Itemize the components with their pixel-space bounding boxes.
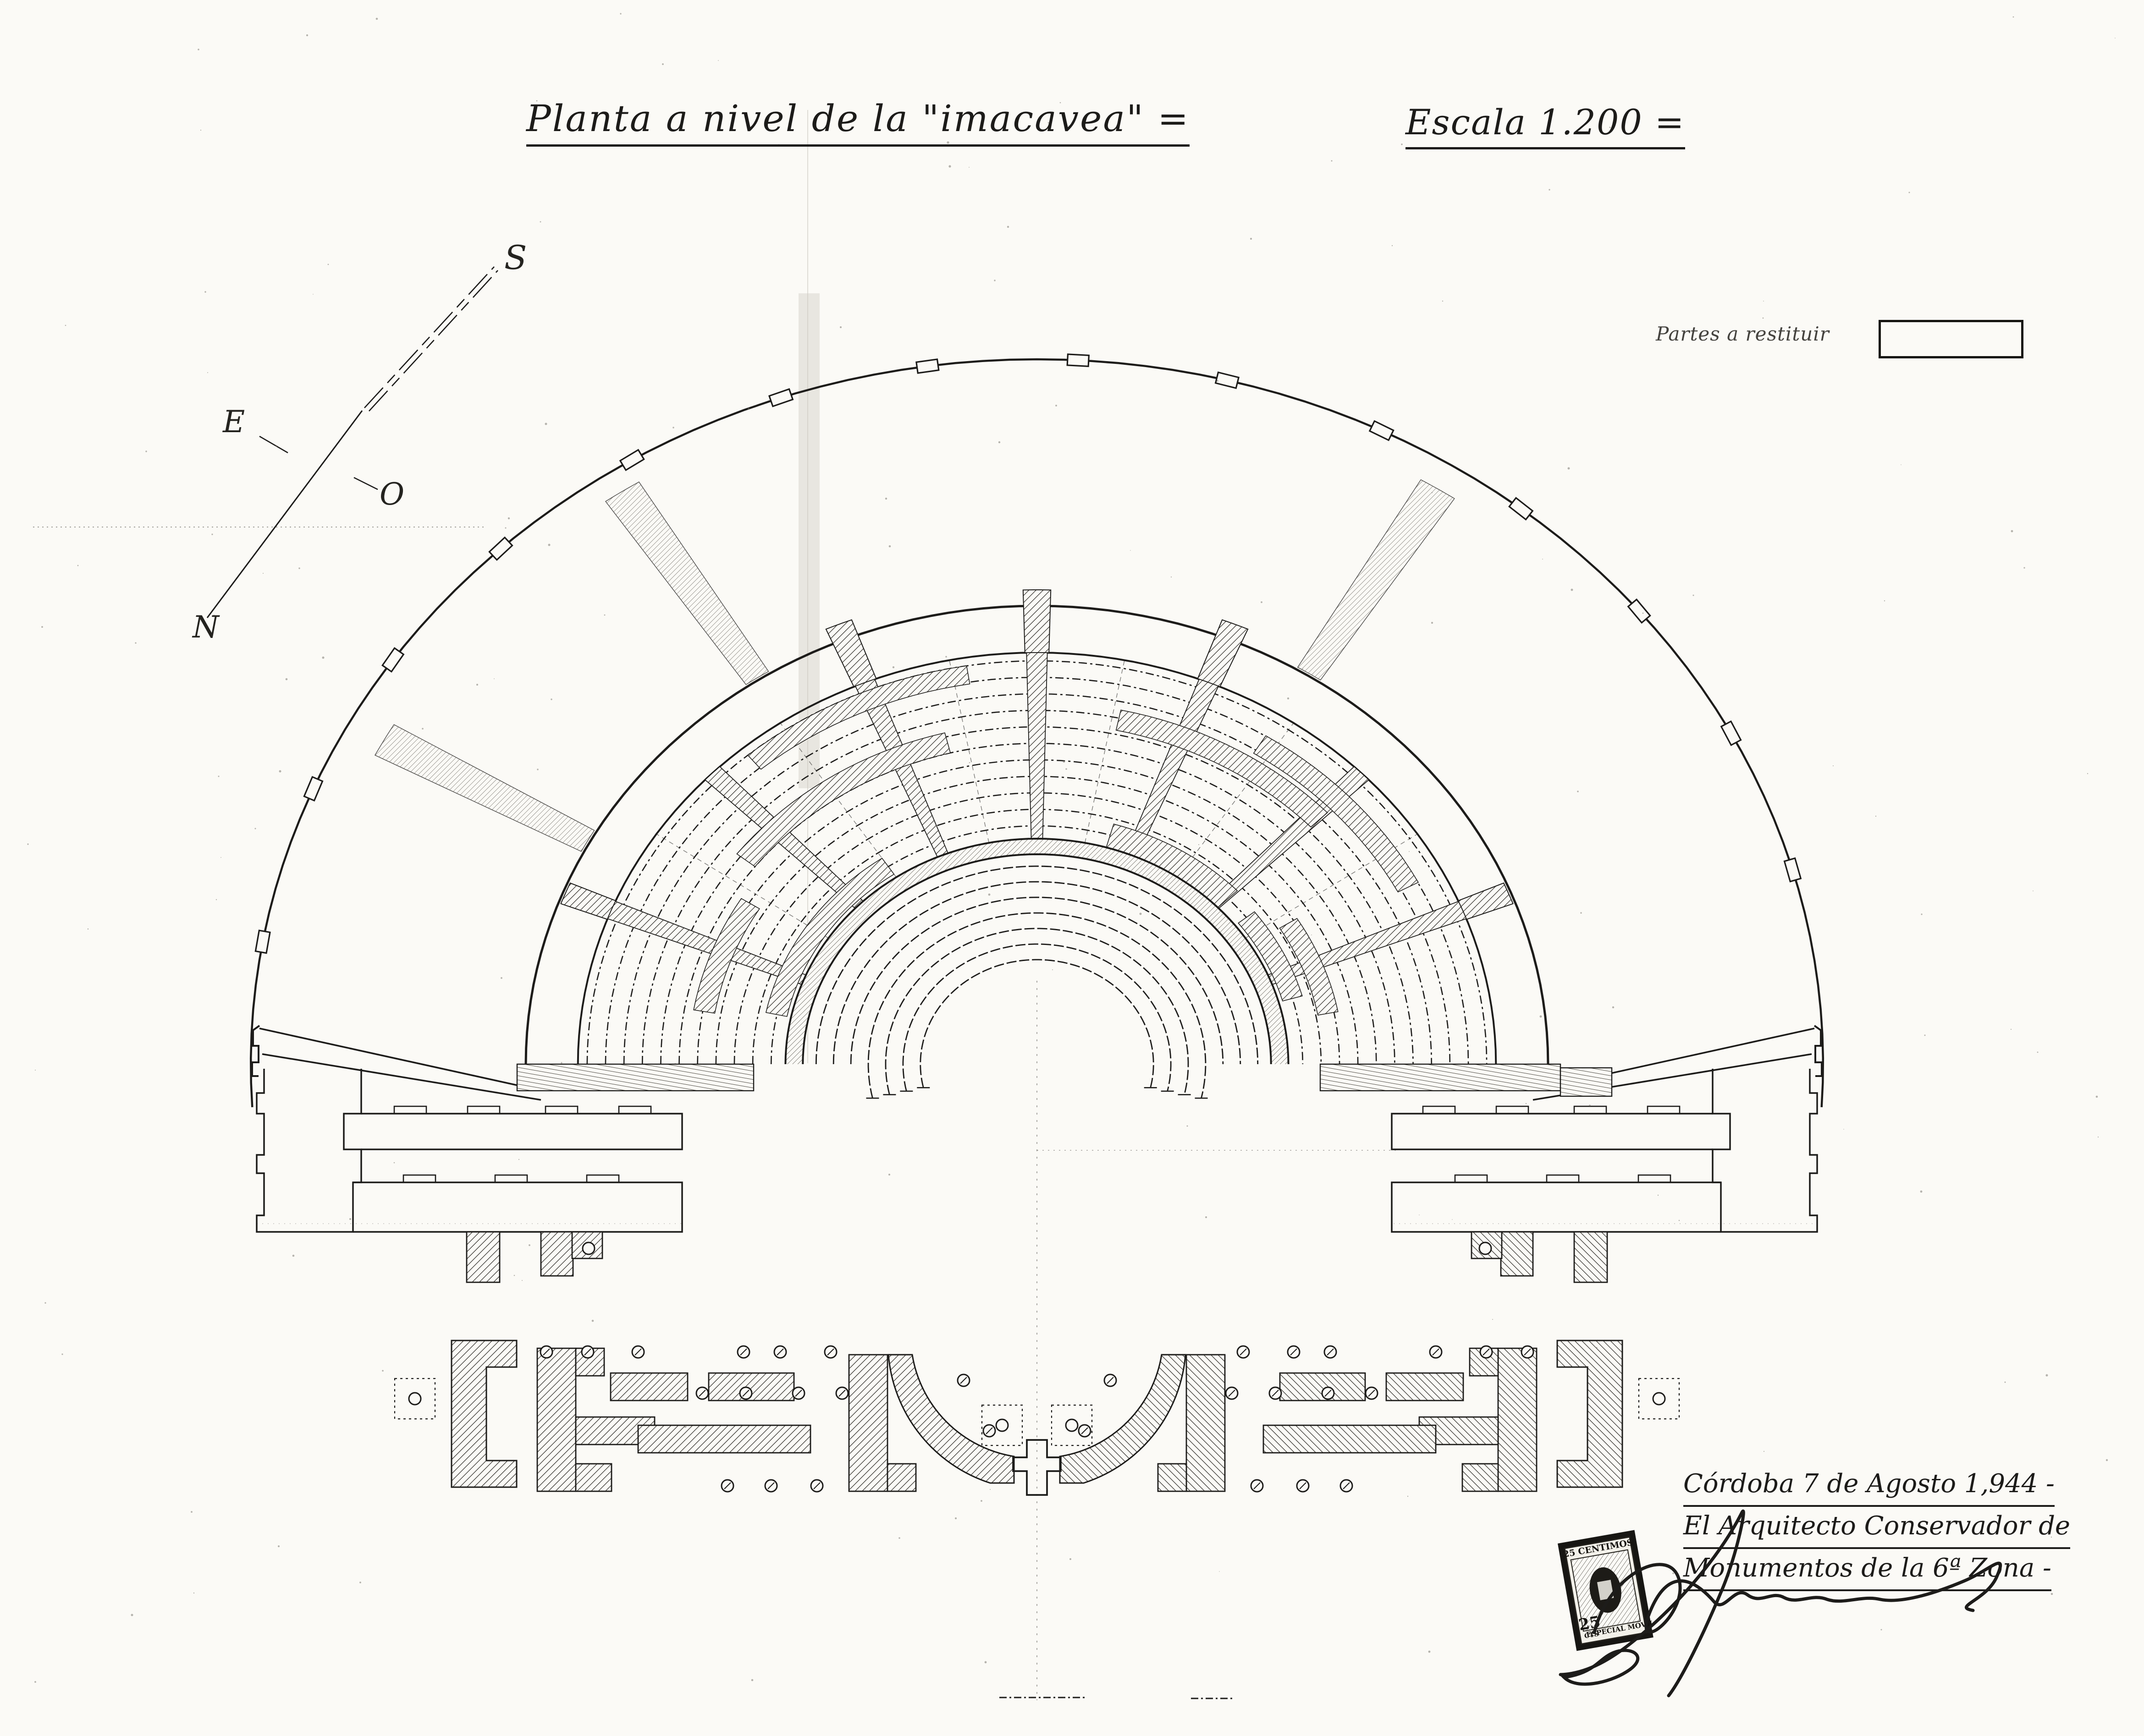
column-base bbox=[1653, 1393, 1665, 1405]
scan-speckle bbox=[2013, 16, 2014, 18]
side-structure-wall bbox=[353, 1182, 682, 1232]
scan-speckle bbox=[1063, 761, 1065, 763]
scan-speckle bbox=[1140, 913, 1142, 915]
scan-speckle bbox=[1069, 1558, 1071, 1560]
scan-speckle bbox=[672, 427, 674, 428]
wall-pier-hatched bbox=[1158, 1464, 1186, 1491]
zone-line: Monumentos de la 6ª Zona - bbox=[1683, 1549, 2051, 1591]
cuneus-line bbox=[949, 660, 989, 843]
scan-speckle bbox=[548, 544, 551, 546]
scan-speckle bbox=[969, 167, 970, 168]
scan-speckle bbox=[1875, 816, 1876, 817]
facade-buttress-notch bbox=[1628, 599, 1650, 623]
scan-speckle bbox=[1302, 668, 1303, 669]
wall-notch bbox=[1496, 1106, 1528, 1114]
compass-tick bbox=[259, 436, 288, 453]
vomitorium-stub bbox=[561, 883, 616, 919]
legend-label: Partes a restituir bbox=[1656, 323, 1830, 345]
scan-speckle bbox=[1542, 559, 1543, 560]
scan-speckle bbox=[1392, 245, 1393, 246]
facade-buttress-notch bbox=[382, 648, 403, 671]
stage-wall-hatched bbox=[1557, 1340, 1622, 1487]
scan-speckle bbox=[476, 684, 478, 686]
scan-speckle bbox=[1311, 934, 1312, 935]
scan-speckle bbox=[1884, 600, 1885, 601]
scan-speckle bbox=[998, 441, 1000, 443]
scan-speckle bbox=[1409, 851, 1410, 852]
scan-speckle bbox=[1642, 613, 1644, 614]
scan-speckle bbox=[2023, 567, 2025, 568]
compass-south-label: S bbox=[504, 238, 527, 277]
scan-speckle bbox=[955, 1517, 957, 1519]
scan-speckle bbox=[131, 1614, 133, 1616]
scan-speckle bbox=[718, 60, 719, 61]
wall-notch bbox=[468, 1106, 500, 1114]
scan-speckle bbox=[604, 615, 606, 616]
scan-speckle bbox=[1763, 318, 1764, 319]
scan-speckle bbox=[1217, 380, 1218, 382]
vomitorium-stub bbox=[1198, 620, 1248, 687]
scan-speckle bbox=[988, 894, 991, 896]
scan-speckle bbox=[1442, 301, 1443, 302]
wall-pier-hatched bbox=[1498, 1348, 1537, 1491]
scan-speckle bbox=[893, 666, 894, 668]
scan-speckle bbox=[1130, 550, 1131, 551]
scan-speckle bbox=[1679, 1220, 1680, 1221]
scan-speckle bbox=[1764, 1451, 1764, 1452]
scan-speckle bbox=[1171, 577, 1172, 577]
scan-speckle bbox=[494, 678, 495, 679]
scan-speckle bbox=[994, 280, 995, 281]
wall-notch bbox=[1574, 1106, 1606, 1114]
scan-speckle bbox=[889, 545, 891, 548]
wall-pier-hatched bbox=[1462, 1464, 1498, 1491]
wall-pier-hatched bbox=[541, 1232, 573, 1276]
scan-speckle bbox=[1763, 301, 1764, 302]
scan-speckle bbox=[1843, 1129, 1844, 1130]
compass-west-label: O bbox=[380, 477, 404, 512]
aditus-wall-line bbox=[262, 1054, 541, 1100]
drawing-layer bbox=[27, 13, 2115, 1700]
scan-speckle bbox=[1571, 589, 1573, 591]
scan-speckle bbox=[41, 626, 43, 628]
column-base bbox=[1479, 1242, 1491, 1254]
scan-speckle bbox=[1580, 912, 1582, 913]
scan-speckle bbox=[218, 776, 220, 777]
scan-speckle bbox=[840, 326, 842, 328]
wall-notch bbox=[1638, 1175, 1670, 1182]
scan-speckle bbox=[885, 498, 887, 500]
scan-speckle bbox=[1052, 969, 1053, 970]
scan-speckle bbox=[278, 1545, 280, 1547]
scan-speckle bbox=[1261, 601, 1262, 603]
scan-speckle bbox=[537, 769, 538, 770]
compass-east-label: E bbox=[223, 404, 245, 439]
compass-north-label: N bbox=[193, 610, 219, 645]
scan-speckle bbox=[88, 928, 89, 930]
scan-speckle bbox=[545, 423, 547, 425]
scan-speckle bbox=[135, 642, 136, 643]
wall-notch bbox=[1648, 1106, 1680, 1114]
wall-notch bbox=[587, 1175, 619, 1182]
seat-row-arc bbox=[771, 826, 1303, 1064]
scan-speckle bbox=[662, 63, 664, 65]
ima-cavea-row-arc bbox=[833, 882, 1240, 1064]
wall-pier-hatched bbox=[1386, 1373, 1463, 1401]
scan-speckle bbox=[255, 828, 256, 830]
scan-speckle bbox=[77, 565, 79, 566]
ambulacrum-restoration-patch bbox=[606, 482, 769, 685]
column-base bbox=[996, 1419, 1008, 1431]
scan-speckle bbox=[1881, 1629, 1882, 1631]
wall-pier-hatched bbox=[1574, 1232, 1607, 1282]
scan-speckle bbox=[1924, 1035, 1926, 1036]
scan-speckle bbox=[2096, 1096, 2098, 1098]
scan-speckle bbox=[1568, 467, 1570, 470]
scan-speckle bbox=[514, 1275, 515, 1276]
wall-pier-hatched bbox=[467, 1232, 500, 1282]
scan-speckle bbox=[422, 728, 424, 730]
scan-speckle bbox=[522, 1280, 523, 1281]
compass-tick bbox=[354, 478, 378, 489]
vomitorium-stub bbox=[1023, 590, 1051, 653]
scan-speckle bbox=[322, 657, 325, 659]
seating-restoration-patch bbox=[1254, 736, 1418, 892]
scan-speckle bbox=[561, 1062, 562, 1063]
scan-speckle bbox=[1658, 1195, 1659, 1196]
scan-speckle bbox=[1549, 189, 1550, 190]
scan-speckle bbox=[286, 678, 288, 681]
scan-speckle bbox=[2037, 1052, 2039, 1053]
facade-buttress-notch bbox=[304, 777, 322, 801]
scan-speckle bbox=[298, 567, 300, 569]
scan-speckle bbox=[1250, 238, 1252, 240]
scan-speckle bbox=[349, 1218, 351, 1220]
scan-speckle bbox=[1065, 728, 1066, 729]
ambulacrum-restoration-patch bbox=[1298, 480, 1455, 680]
scan-speckle bbox=[359, 1582, 361, 1583]
wall-pier-hatched bbox=[537, 1348, 576, 1491]
scan-speckle bbox=[220, 857, 221, 858]
scan-speckle bbox=[2011, 530, 2013, 533]
scan-speckle bbox=[2106, 1459, 2108, 1461]
compass-needle-double bbox=[364, 267, 494, 408]
compass-needle-double bbox=[369, 270, 498, 411]
vomitorium-stub bbox=[1458, 883, 1513, 919]
scale-label: Escala 1.200 = bbox=[1405, 102, 1685, 149]
legend-restoration-swatch bbox=[1879, 320, 2023, 358]
scan-speckle bbox=[620, 13, 621, 14]
wall-pier-hatched bbox=[887, 1464, 916, 1491]
side-structure-wall bbox=[361, 1114, 682, 1149]
left-half-structures bbox=[257, 1069, 1061, 1495]
scan-speckle bbox=[985, 1661, 987, 1664]
column-base bbox=[1066, 1419, 1078, 1431]
scan-speckle bbox=[1428, 1651, 1431, 1653]
scan-speckle bbox=[1205, 1216, 1207, 1218]
scan-speckle bbox=[279, 770, 281, 773]
facade-buttress-notch bbox=[916, 359, 939, 373]
scan-speckle bbox=[1492, 1319, 1493, 1320]
date-line: Córdoba 7 de Agosto 1,944 - bbox=[1683, 1465, 2055, 1507]
scan-speckle bbox=[540, 221, 541, 223]
scan-speckle bbox=[313, 294, 314, 295]
ambulacrum-restoration-patch bbox=[375, 725, 595, 852]
scan-speckle bbox=[1198, 844, 1199, 845]
ima-cavea-row-arc bbox=[920, 960, 1153, 1088]
scan-speckle bbox=[44, 1302, 46, 1303]
facade-buttress-notch bbox=[620, 450, 644, 470]
scan-speckle bbox=[855, 1447, 856, 1448]
scan-speckle bbox=[276, 445, 277, 446]
scan-speckle bbox=[65, 325, 66, 326]
scan-speckle bbox=[1596, 1347, 1597, 1348]
side-structure-wall bbox=[257, 1069, 361, 1232]
scan-speckle bbox=[1345, 645, 1346, 647]
scan-speckle bbox=[1693, 595, 1694, 596]
scan-speckle bbox=[592, 1320, 594, 1322]
facade-buttress-notch bbox=[1509, 498, 1532, 519]
facade-buttress-notch bbox=[1370, 421, 1394, 440]
scan-speckle bbox=[1577, 791, 1579, 792]
stage-wall-hatched bbox=[452, 1340, 517, 1487]
facade-buttress-notch bbox=[1067, 354, 1089, 366]
right-half-structures bbox=[1013, 1069, 1817, 1495]
scan-speckle bbox=[898, 1537, 900, 1539]
scan-speckle bbox=[2005, 1382, 2006, 1383]
wall-notch bbox=[495, 1175, 527, 1182]
scan-speckle bbox=[1612, 1006, 1614, 1008]
scan-speckle bbox=[529, 1244, 530, 1246]
scan-speckle bbox=[1526, 1103, 1527, 1104]
facade-buttress-notch bbox=[769, 389, 793, 407]
scan-speckle bbox=[1672, 1572, 1674, 1574]
cavea-base-restoration-strip bbox=[517, 1064, 754, 1091]
wall-notch bbox=[394, 1106, 426, 1114]
facade-buttress-notch bbox=[1216, 372, 1239, 388]
scan-speckle bbox=[518, 1159, 519, 1160]
scan-speckle bbox=[896, 861, 898, 863]
scan-speckle bbox=[1219, 1571, 1220, 1572]
scan-speckle bbox=[1452, 1219, 1453, 1220]
wall-pier-hatched bbox=[638, 1425, 810, 1453]
column-base bbox=[409, 1393, 421, 1405]
scan-speckle bbox=[35, 1070, 36, 1071]
signature-block: Córdoba 7 de Agosto 1,944 - El Arquitect… bbox=[1683, 1465, 2070, 1591]
scan-speckle bbox=[948, 165, 951, 167]
scan-speckle bbox=[675, 1063, 676, 1064]
wall-notch bbox=[1547, 1175, 1579, 1182]
scan-speckle bbox=[1431, 622, 1433, 624]
scan-speckle bbox=[27, 843, 28, 845]
scan-speckle bbox=[748, 408, 750, 410]
side-structure-wall bbox=[1713, 1069, 1817, 1232]
facade-end-cap bbox=[252, 1026, 259, 1076]
wall-notch bbox=[1423, 1106, 1455, 1114]
scan-speckle bbox=[990, 1489, 991, 1490]
scan-speckle bbox=[2046, 1374, 2048, 1377]
wall-pier-hatched bbox=[1501, 1232, 1533, 1276]
scan-speckle bbox=[1007, 226, 1009, 228]
scan-speckle bbox=[394, 1162, 395, 1164]
scan-speckle bbox=[888, 1174, 890, 1176]
architect-line: El Arquitecto Conservador de bbox=[1683, 1507, 2070, 1549]
wall-pier-hatched bbox=[1186, 1355, 1225, 1491]
scan-speckle bbox=[191, 1511, 193, 1513]
facade-buttress-notch bbox=[489, 538, 512, 560]
vomitorium-stub bbox=[826, 620, 876, 687]
scan-speckle bbox=[193, 1593, 194, 1593]
scan-speckle bbox=[34, 1681, 36, 1683]
compass-needle bbox=[207, 411, 362, 618]
scan-speckle bbox=[306, 34, 308, 36]
aditus-wall-line bbox=[259, 1028, 540, 1090]
scan-speckle bbox=[1331, 160, 1333, 162]
scan-speckle bbox=[204, 291, 206, 292]
scan-speckle bbox=[969, 762, 970, 764]
scan-speckle bbox=[263, 573, 264, 574]
scan-speckle bbox=[145, 450, 147, 452]
scan-speckle bbox=[328, 264, 329, 265]
wall-notch bbox=[403, 1175, 435, 1182]
wall-pier-hatched bbox=[576, 1464, 612, 1491]
sheet-title: Planta a nivel de la "imacavea" = bbox=[526, 97, 1190, 147]
scan-speckle bbox=[981, 1500, 982, 1502]
scan-speckle bbox=[1432, 492, 1433, 493]
wall-pier-hatched bbox=[611, 1373, 688, 1401]
scan-speckle bbox=[728, 961, 730, 963]
scan-speckle bbox=[1287, 698, 1289, 699]
cavea-base-restoration-strip bbox=[1560, 1068, 1612, 1096]
wall-notch bbox=[1455, 1175, 1487, 1182]
scan-speckle bbox=[376, 18, 378, 20]
scan-speckle bbox=[505, 527, 507, 529]
scan-speckle bbox=[508, 517, 510, 519]
scan-speckle bbox=[751, 1679, 754, 1681]
cavea-base-restoration-strip bbox=[1320, 1064, 1560, 1091]
wall-notch bbox=[546, 1106, 578, 1114]
scan-speckle bbox=[551, 698, 552, 700]
scan-speckle bbox=[1419, 1214, 1420, 1215]
scan-speckle bbox=[2033, 890, 2034, 891]
facade-buttress-notch bbox=[1721, 721, 1741, 745]
facade-end-cap bbox=[1814, 1026, 1822, 1076]
facade-buttress-notch bbox=[1785, 858, 1801, 882]
scan-speckle bbox=[1909, 192, 1910, 193]
scan-speckle bbox=[198, 49, 199, 50]
scan-speckle bbox=[1589, 1104, 1591, 1106]
column-base bbox=[583, 1242, 595, 1254]
scan-speckle bbox=[292, 1255, 295, 1257]
scan-speckle bbox=[1055, 405, 1057, 407]
scan-speckle bbox=[684, 1425, 686, 1428]
scan-speckle bbox=[1401, 143, 1402, 145]
radial-stair bbox=[1026, 653, 1047, 839]
scan-speckle bbox=[1920, 1191, 1923, 1193]
scan-speckle bbox=[2051, 1593, 2053, 1595]
scan-speckle bbox=[1901, 464, 1901, 465]
scanned-plan-sheet: 25 CENTIMOS 25 CTS ESPECIAL MOVIL Planta… bbox=[0, 0, 2144, 1736]
scan-speckle bbox=[382, 1370, 384, 1372]
scan-speckle bbox=[207, 372, 208, 373]
scan-speckle bbox=[2087, 773, 2088, 774]
scan-speckle bbox=[1921, 913, 1922, 915]
scan-speckle bbox=[1540, 1016, 1542, 1018]
side-structure-wall bbox=[1392, 1114, 1713, 1149]
scan-speckle bbox=[1833, 765, 1834, 766]
scan-speckle bbox=[1187, 1126, 1188, 1127]
scan-speckle bbox=[61, 1353, 63, 1355]
wall-pier-hatched bbox=[849, 1355, 887, 1491]
wall-pier-hatched bbox=[1263, 1425, 1436, 1453]
scan-speckle bbox=[1407, 1496, 1408, 1497]
scan-speckle bbox=[2011, 1029, 2012, 1030]
scan-speckle bbox=[211, 533, 213, 535]
scan-speckle bbox=[501, 977, 502, 979]
side-structure-wall bbox=[1392, 1182, 1721, 1232]
facade-buttress-notch bbox=[255, 930, 270, 953]
scan-speckle bbox=[2098, 1137, 2099, 1137]
scan-speckle bbox=[2115, 38, 2116, 38]
scan-speckle bbox=[200, 130, 201, 131]
wall-notch bbox=[619, 1106, 651, 1114]
scan-speckle bbox=[1065, 768, 1067, 770]
scan-speckle bbox=[216, 899, 217, 900]
scan-speckle bbox=[945, 656, 947, 658]
